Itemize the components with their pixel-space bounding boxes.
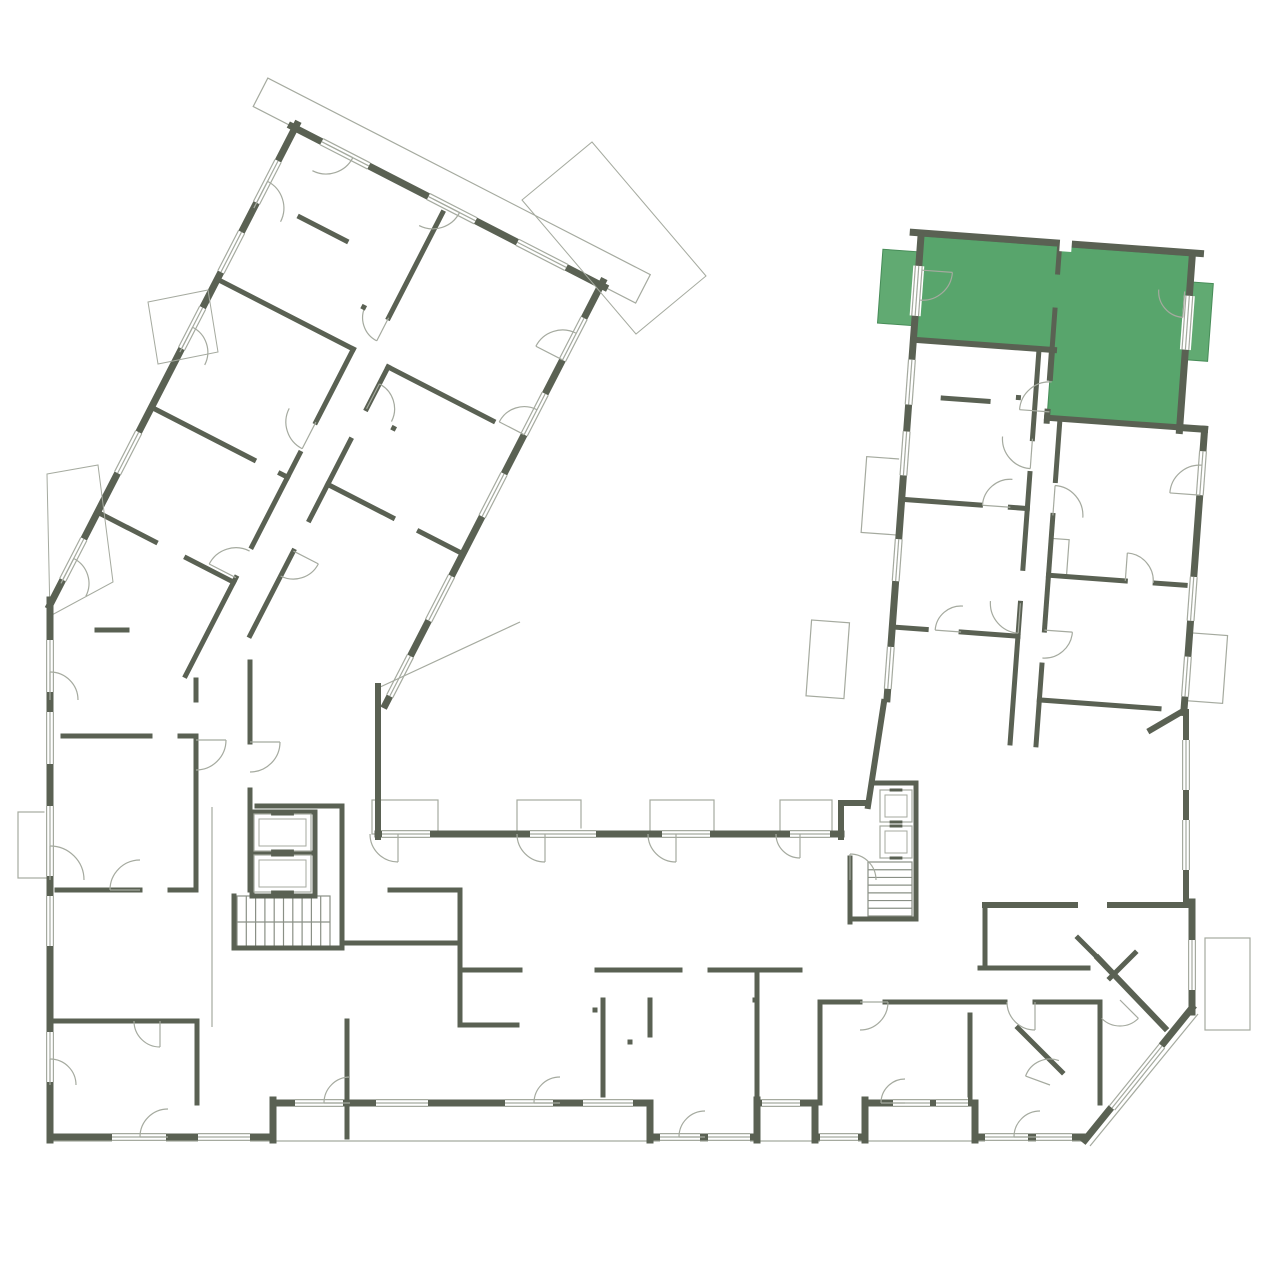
balcony-outline [806,620,849,699]
left-wing [8,78,651,781]
floorplan-page [0,0,1280,1280]
balcony-outline [1205,938,1250,1030]
apex-terrace [522,142,706,334]
right-wing [804,221,1256,758]
floorplan-svg [0,0,1280,1280]
balcony-outline [253,78,650,303]
